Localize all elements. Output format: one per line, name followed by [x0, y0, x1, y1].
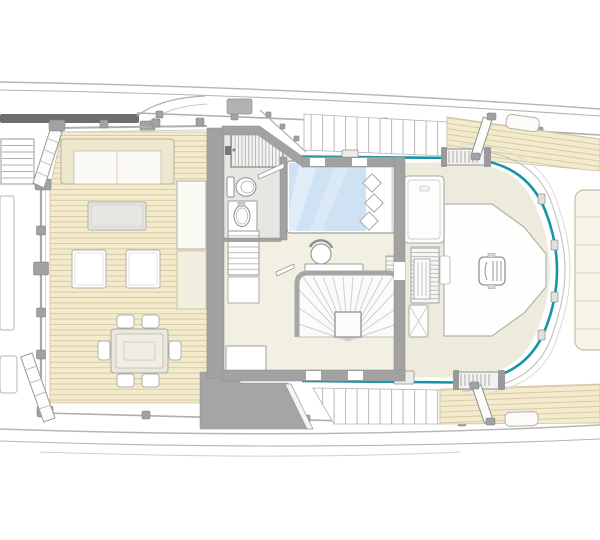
dining-table-top — [116, 334, 163, 368]
stair-landing — [335, 312, 361, 337]
dining-chair — [142, 315, 159, 328]
hull-bulwark-bottom — [0, 439, 600, 446]
bathroom-shelf-unit — [228, 231, 259, 275]
deck-hatch-bottom — [505, 411, 538, 426]
wall-top-short — [222, 126, 260, 135]
hull-waterline-bottom — [40, 452, 460, 456]
cabin-bench — [226, 346, 266, 372]
deck-box — [227, 99, 252, 114]
washbasin-icon — [228, 201, 257, 232]
platform-step — [440, 256, 450, 284]
ottoman-left — [72, 250, 106, 288]
dining-chair — [117, 315, 134, 328]
wall-bathroom-low — [224, 238, 281, 242]
slatted-locker — [411, 247, 439, 303]
side-deck-steps-bottom — [313, 388, 440, 424]
bow-sunpad — [575, 190, 600, 350]
aft-sofa — [61, 139, 174, 184]
dining-chair — [169, 341, 181, 360]
dining-chair — [98, 341, 110, 360]
stool — [311, 244, 331, 264]
toilet-icon — [227, 177, 256, 197]
deck-locker — [409, 305, 428, 337]
bathroom-cabinet — [228, 277, 259, 303]
transom-panel — [0, 356, 17, 393]
aft-deck — [1, 118, 207, 422]
double-bed — [284, 161, 399, 233]
wall-aft — [207, 128, 224, 378]
aft-deck-top-rail — [55, 126, 207, 128]
anchor-hatch — [479, 254, 505, 289]
hull-sheer-top — [0, 82, 600, 109]
sideboard-cabinet — [177, 181, 206, 249]
dining-chair — [117, 374, 134, 387]
curved-staircase — [297, 273, 399, 341]
deck-plan-drawing — [0, 0, 600, 540]
forward-bench — [404, 176, 444, 243]
side-deck-steps-top — [304, 114, 447, 156]
deck-overhang-shadow — [0, 114, 139, 123]
shower-head-icon — [225, 146, 231, 155]
dining-chair — [142, 374, 159, 387]
ottoman-right — [126, 250, 160, 288]
yacht-deck-plan — [0, 0, 600, 540]
shower-drain-icon — [232, 148, 235, 151]
boarding-gate-top — [441, 147, 491, 167]
coffee-table — [88, 202, 146, 230]
owner-cabin — [207, 126, 405, 381]
sideboard-cabinet-low — [177, 251, 206, 309]
transom-platform-edge — [0, 196, 14, 330]
